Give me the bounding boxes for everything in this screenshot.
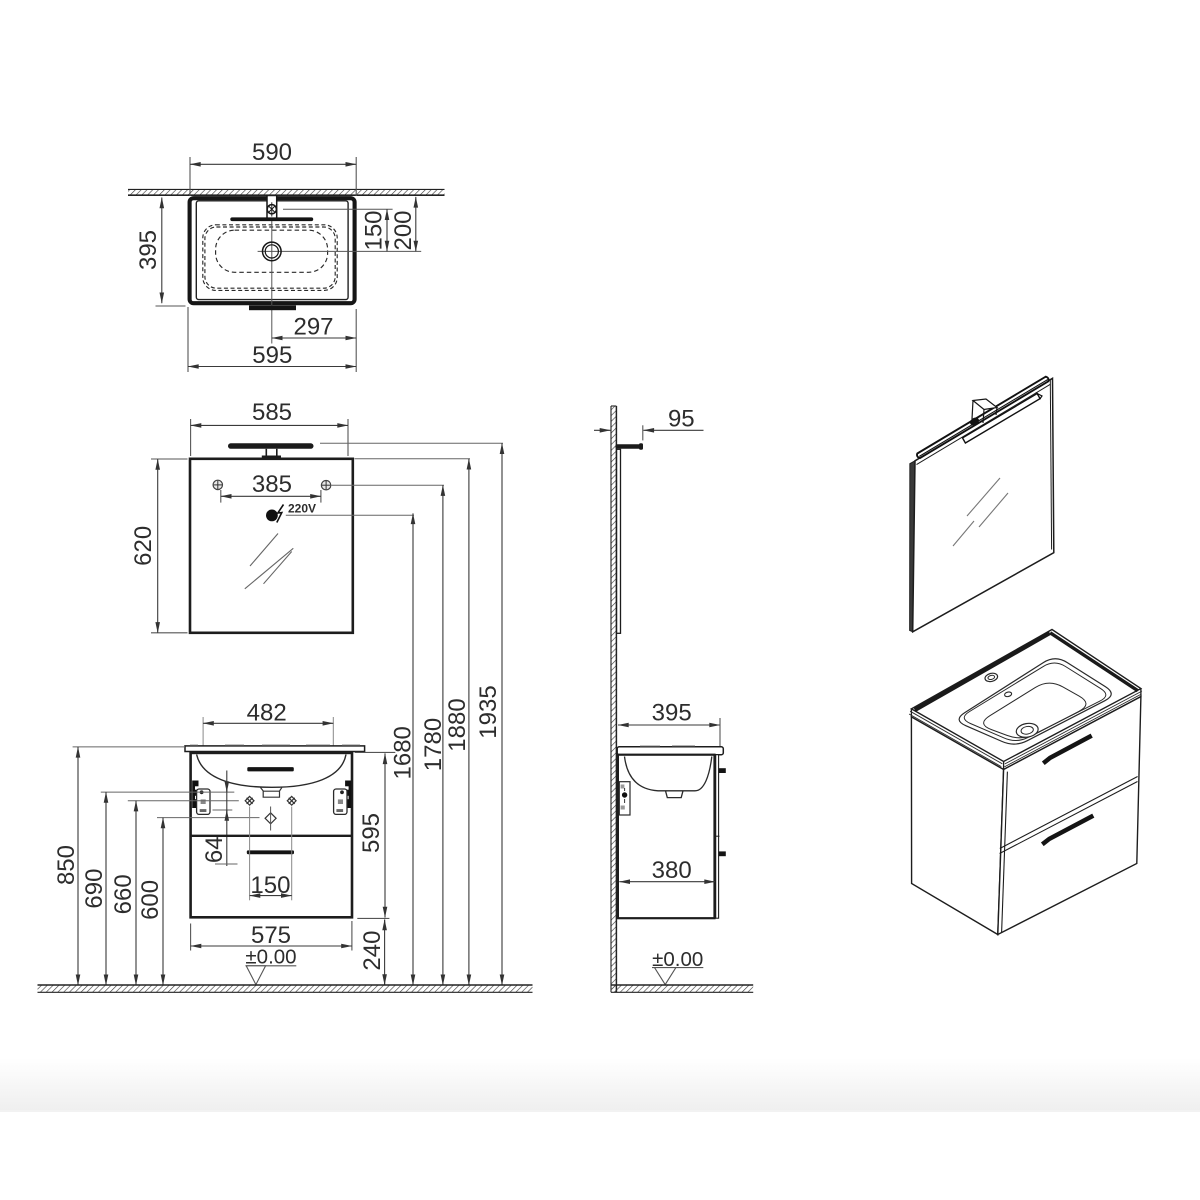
svg-text:482: 482 <box>247 700 287 727</box>
svg-text:1680: 1680 <box>389 726 416 779</box>
svg-text:1880: 1880 <box>444 698 471 751</box>
svg-text:595: 595 <box>252 342 292 369</box>
svg-text:64: 64 <box>201 836 228 863</box>
svg-text:1935: 1935 <box>475 685 502 738</box>
svg-text:240: 240 <box>359 931 386 971</box>
svg-text:395: 395 <box>135 230 162 270</box>
svg-text:395: 395 <box>652 699 692 726</box>
svg-text:95: 95 <box>668 406 695 433</box>
svg-text:297: 297 <box>293 313 333 340</box>
svg-text:1780: 1780 <box>420 718 447 771</box>
svg-text:585: 585 <box>252 399 292 426</box>
svg-text:±0.00: ±0.00 <box>245 946 296 969</box>
svg-text:850: 850 <box>53 845 80 885</box>
svg-text:590: 590 <box>252 139 292 166</box>
svg-text:220V: 220V <box>288 501 316 515</box>
svg-text:620: 620 <box>130 526 157 566</box>
svg-text:600: 600 <box>137 880 164 920</box>
svg-text:200: 200 <box>390 210 417 250</box>
svg-text:385: 385 <box>252 471 292 498</box>
svg-text:595: 595 <box>358 813 385 853</box>
svg-text:690: 690 <box>81 869 108 909</box>
svg-text:660: 660 <box>110 874 137 914</box>
svg-text:380: 380 <box>652 857 692 884</box>
svg-text:150: 150 <box>250 872 290 899</box>
svg-text:150: 150 <box>361 210 388 250</box>
